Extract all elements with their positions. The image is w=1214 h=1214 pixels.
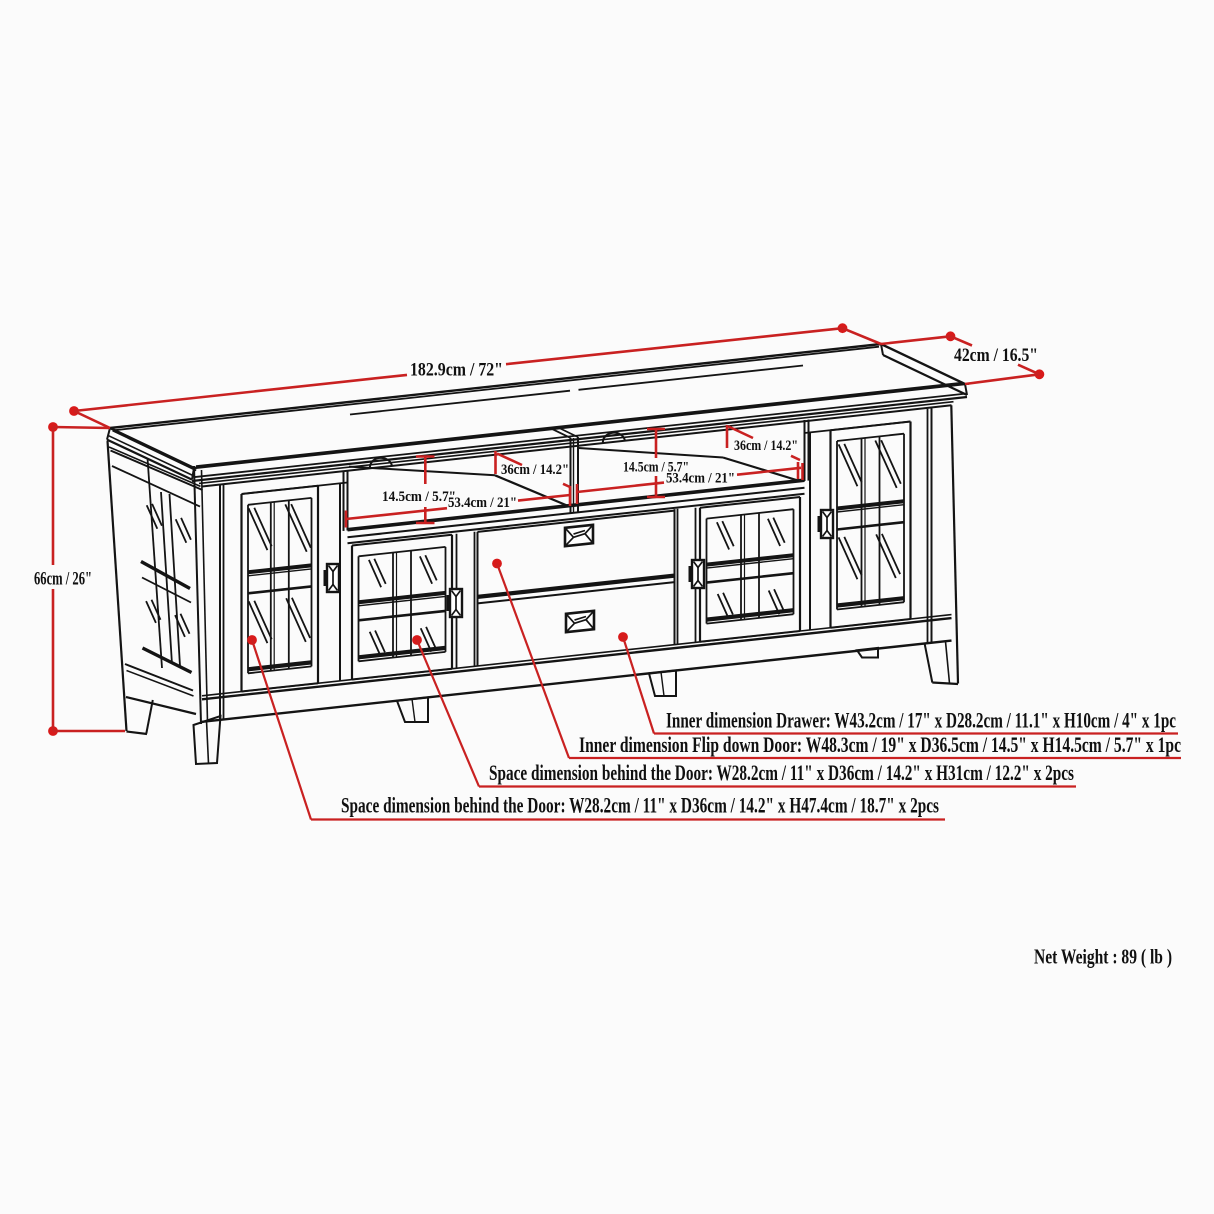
- svg-text:Inner dimension Flip down Door: Inner dimension Flip down Door: W48.3cm …: [579, 732, 1181, 757]
- svg-text:14.5cm / 5.7": 14.5cm / 5.7": [382, 489, 456, 505]
- svg-text:36cm / 14.2": 36cm / 14.2": [734, 438, 798, 454]
- svg-text:42cm / 16.5": 42cm / 16.5": [954, 345, 1038, 366]
- svg-text:Net Weight : 89 ( lb ): Net Weight : 89 ( lb ): [1034, 945, 1172, 969]
- svg-text:Space dimension behind the Doo: Space dimension behind the Door: W28.2cm…: [489, 760, 1074, 785]
- svg-text:53.4cm / 21": 53.4cm / 21": [666, 471, 735, 487]
- svg-text:182.9cm / 72": 182.9cm / 72": [410, 360, 503, 381]
- svg-text:Space dimension behind the Doo: Space dimension behind the Door: W28.2cm…: [341, 793, 939, 818]
- svg-text:53.4cm / 21": 53.4cm / 21": [448, 495, 517, 511]
- svg-text:Inner dimension Drawer: W43.2c: Inner dimension Drawer: W43.2cm / 17" x …: [666, 708, 1176, 733]
- svg-text:66cm / 26": 66cm / 26": [34, 569, 92, 590]
- svg-text:36cm / 14.2": 36cm / 14.2": [501, 462, 569, 478]
